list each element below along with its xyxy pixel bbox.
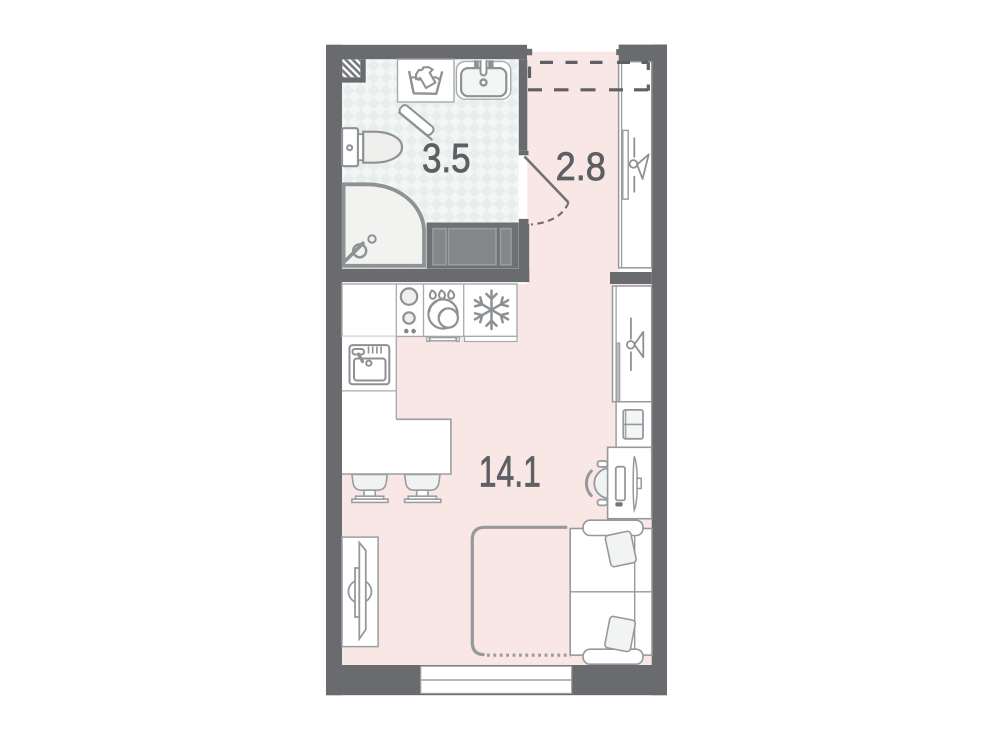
svg-text:2.8: 2.8: [556, 145, 606, 189]
svg-text:3.5: 3.5: [422, 137, 471, 182]
svg-text:14.1: 14.1: [479, 447, 541, 496]
